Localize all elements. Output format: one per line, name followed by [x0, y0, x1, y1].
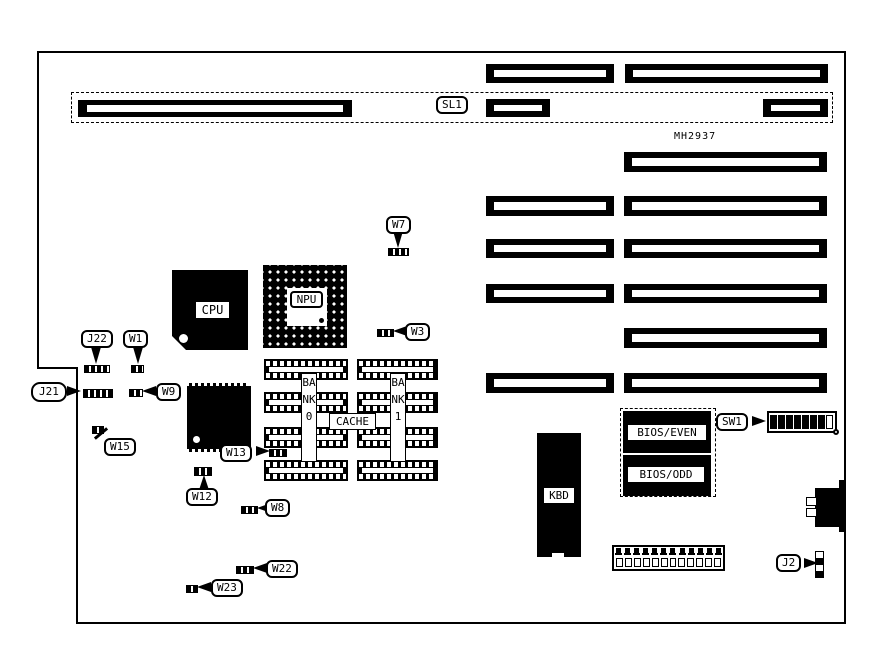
jumper-j21	[83, 389, 113, 398]
expansion-slot	[624, 284, 827, 303]
cache-label: CACHE	[329, 413, 376, 430]
dip-socket	[357, 460, 438, 481]
jumper-w7	[388, 248, 409, 256]
expansion-slot	[486, 196, 614, 216]
callout-j2: J2	[776, 554, 801, 572]
expansion-slot	[624, 196, 827, 216]
connector-pin	[687, 558, 694, 567]
connector-pin	[689, 548, 694, 553]
pin1-dot	[319, 318, 324, 323]
leader-j2	[804, 558, 818, 568]
connector-pin	[705, 558, 712, 567]
connector-pin	[652, 548, 657, 553]
jumper-w9	[129, 389, 143, 397]
bios-even-label: BIOS/EVEN	[627, 424, 707, 441]
connector-pin	[616, 558, 623, 567]
dip-switch-segment	[786, 415, 793, 429]
keyboard-din-connector-tab	[839, 480, 846, 532]
connector-pin	[716, 548, 721, 553]
expansion-slot	[624, 152, 827, 172]
switch-corner	[833, 429, 839, 435]
leader-sw1	[752, 416, 766, 426]
motherboard-diagram: MH2937 CPU NPU BANK0 BANK1 CACHE KBD BIO…	[0, 0, 874, 669]
connector-pin	[714, 558, 721, 567]
callout-j22: J22	[81, 330, 113, 348]
callout-w9: W9	[156, 383, 181, 401]
callout-w12: W12	[186, 488, 218, 506]
qfp-chip	[187, 386, 251, 449]
connector-pin	[643, 558, 650, 567]
dip-switch-segment	[826, 415, 833, 429]
pin1-dot	[179, 334, 188, 343]
connector-pin	[696, 558, 703, 567]
connector-pin	[634, 548, 639, 553]
callout-w8: W8	[265, 499, 290, 517]
connector-pin	[652, 558, 659, 567]
power-pins-top	[616, 548, 721, 555]
cpu-label: CPU	[196, 302, 229, 318]
connector-pin	[670, 548, 675, 553]
expansion-slot	[763, 99, 828, 117]
power-pins-bottom	[616, 558, 721, 567]
bank0-label: BANK0	[301, 373, 317, 462]
jumper-w1	[131, 365, 144, 373]
dip-socket	[264, 460, 348, 481]
keyboard-din-connector	[815, 488, 840, 527]
power-connector	[612, 545, 725, 571]
jumper-w3	[377, 329, 394, 337]
leader-w22	[253, 563, 267, 573]
bios-odd-label: BIOS/ODD	[627, 466, 705, 483]
expansion-slot	[624, 373, 827, 393]
dip-switch-segment	[770, 415, 777, 429]
dip-switch-segment	[794, 415, 801, 429]
dip-switch-segment	[778, 415, 785, 429]
connector-pin	[678, 558, 685, 567]
connector-pin	[661, 558, 668, 567]
dip-switch-segment	[818, 415, 825, 429]
expansion-slot	[486, 373, 614, 393]
connector-pin	[625, 558, 632, 567]
connector-pin	[661, 548, 666, 553]
sw1-dip-switch	[767, 411, 837, 433]
npu-label: NPU	[290, 291, 323, 308]
connector-pin	[707, 548, 712, 553]
callout-w13: W13	[220, 444, 252, 462]
expansion-slot	[624, 328, 827, 348]
kbd-label: KBD	[543, 487, 575, 504]
leader-w13	[256, 446, 270, 456]
leader-w1	[133, 347, 143, 364]
jumper-w22	[236, 566, 254, 574]
pin1-dot	[193, 436, 200, 443]
bank1-label: BANK1	[390, 373, 406, 462]
jumper-j22	[84, 365, 110, 373]
connector-pin	[698, 548, 703, 553]
chip-notch	[552, 553, 564, 557]
callout-j21: J21	[31, 382, 67, 402]
connector-pin	[643, 548, 648, 553]
dip-switch-segment	[810, 415, 817, 429]
expansion-slot	[624, 239, 827, 258]
expansion-slot	[78, 100, 352, 117]
leader-j21	[67, 386, 81, 396]
connector-pin	[625, 548, 630, 553]
leader-w9	[142, 386, 156, 396]
connector-pin	[634, 558, 641, 567]
callout-w23: W23	[211, 579, 243, 597]
expansion-slot	[486, 64, 614, 83]
din-pin	[806, 497, 817, 506]
connector-pin	[616, 548, 621, 553]
dip-switch-segment	[802, 415, 809, 429]
callout-sw1: SW1	[716, 413, 748, 431]
expansion-slot	[625, 64, 828, 83]
connector-pin	[680, 548, 685, 553]
callout-w1: W1	[123, 330, 148, 348]
jumper-w8	[241, 506, 258, 514]
connector-pin	[670, 558, 677, 567]
jumper-w13	[269, 449, 287, 457]
callout-w22: W22	[266, 560, 298, 578]
silkscreen-label: MH2937	[674, 131, 716, 142]
callout-w7: W7	[386, 216, 411, 234]
callout-w15: W15	[104, 438, 136, 456]
din-pin	[806, 508, 817, 517]
callout-sl1: SL1	[436, 96, 468, 114]
leader-j22	[91, 347, 101, 364]
leader-w23	[197, 582, 211, 592]
header-pin	[816, 571, 823, 577]
expansion-slot	[486, 99, 550, 117]
expansion-slot	[486, 284, 614, 303]
callout-w3: W3	[405, 323, 430, 341]
expansion-slot	[486, 239, 614, 258]
